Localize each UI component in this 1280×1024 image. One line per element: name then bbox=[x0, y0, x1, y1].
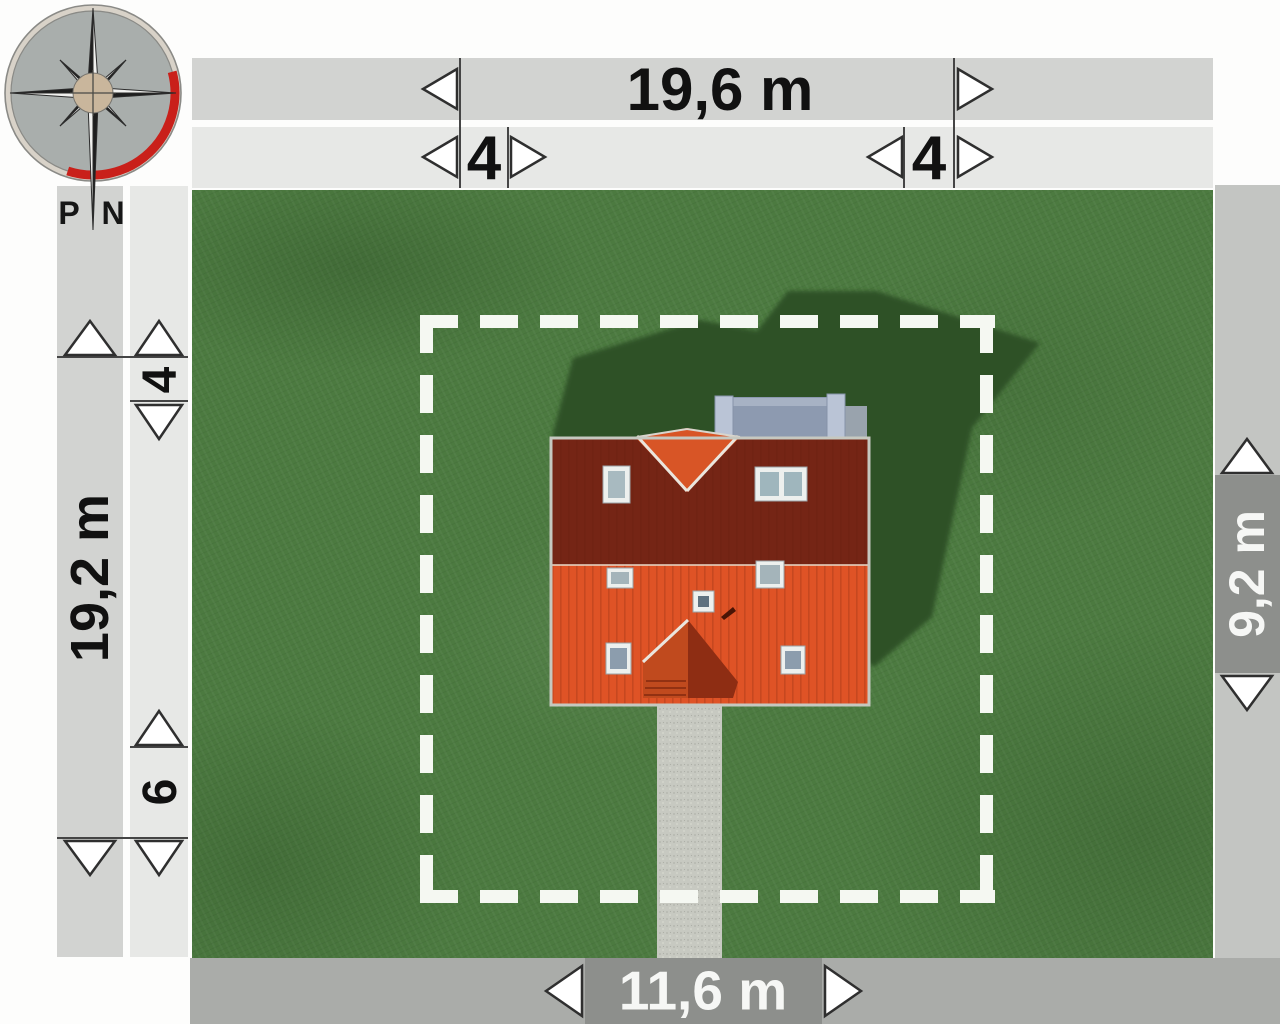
skylight-mid-right bbox=[756, 561, 784, 588]
dimension-arrow-right-icon bbox=[955, 134, 995, 180]
setback-left-bottom-label: 6 bbox=[137, 779, 185, 806]
dimension-arrow-right-icon bbox=[822, 963, 864, 1019]
compass-label-n: N bbox=[101, 195, 124, 231]
setback-left-top-label: 4 bbox=[137, 367, 185, 394]
setback-top-right-label: 4 bbox=[912, 128, 946, 190]
dimension-arrow-right-icon bbox=[508, 134, 548, 180]
dimension-arrow-left-icon bbox=[420, 66, 460, 112]
compass-label-p: P bbox=[58, 195, 79, 231]
dimension-arrow-down-icon bbox=[133, 838, 185, 878]
skylight-lower-left bbox=[606, 643, 631, 674]
skylight-mid-left bbox=[607, 568, 633, 588]
boundary-dash-left bbox=[420, 315, 433, 903]
chimney bbox=[693, 591, 714, 612]
dimension-arrow-up-icon bbox=[133, 708, 185, 748]
dimension-arrow-left-icon bbox=[420, 134, 460, 180]
boundary-dash-right bbox=[980, 315, 993, 903]
dimension-arrow-up-icon bbox=[1219, 436, 1275, 476]
boundary-dash-bottom bbox=[420, 890, 995, 903]
dimension-arrow-left-icon bbox=[543, 963, 585, 1019]
dimension-arrow-right-icon bbox=[955, 66, 995, 112]
skylight-upper-right-double bbox=[755, 467, 807, 501]
driveway-path bbox=[657, 703, 722, 958]
setback-top-left-label: 4 bbox=[467, 128, 501, 190]
dimension-arrow-down-icon bbox=[62, 838, 118, 878]
plot-depth-label: 19,2 m bbox=[63, 494, 117, 662]
boundary-dash-top bbox=[420, 315, 995, 328]
skylight-upper-left bbox=[603, 466, 630, 503]
house-roof bbox=[550, 428, 870, 705]
dimension-arrow-down-icon bbox=[1219, 673, 1275, 713]
dimension-arrow-up-icon bbox=[133, 318, 185, 358]
dimension-bar-top-setbacks bbox=[192, 127, 1213, 188]
plot-width-label: 19,6 m bbox=[627, 60, 814, 120]
skylight-lower-right bbox=[781, 646, 805, 674]
dimension-arrow-left-icon bbox=[865, 134, 905, 180]
house-depth-label: 9,2 m bbox=[1222, 510, 1272, 638]
house-width-label: 11,6 m bbox=[619, 964, 787, 1019]
site-plan: 19,6 m 4 4 19,2 m 4 6 9,2 m 11,6 m bbox=[0, 0, 1280, 1024]
dimension-arrow-up-icon bbox=[62, 318, 118, 358]
terrace bbox=[715, 394, 867, 438]
dimension-arrow-down-icon bbox=[133, 402, 185, 442]
compass-rose: P N bbox=[0, 0, 210, 245]
